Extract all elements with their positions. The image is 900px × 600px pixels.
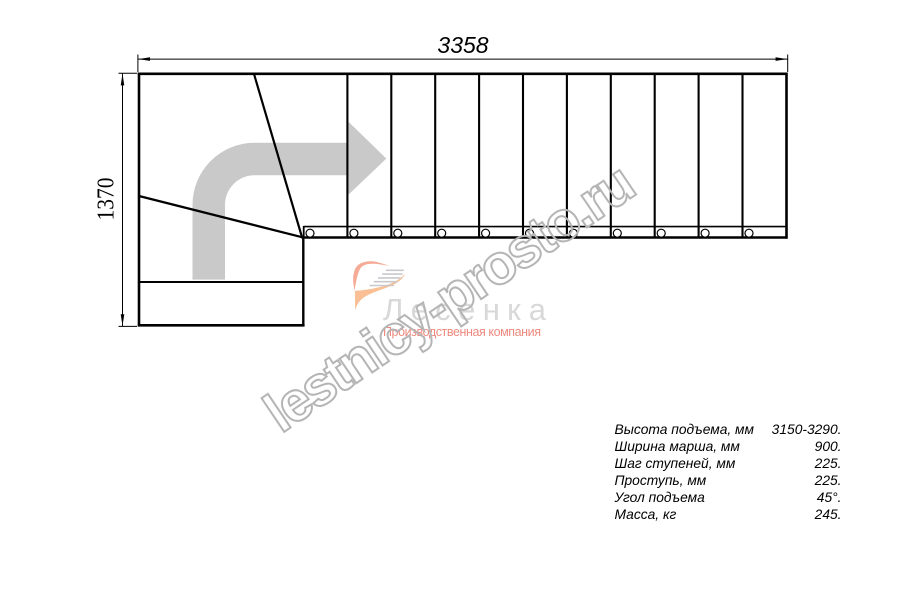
- svg-text:Ширина марша, мм: Ширина марша, мм: [615, 439, 741, 454]
- svg-text:Шаг ступеней, мм: Шаг ступеней, мм: [615, 456, 736, 471]
- svg-text:245.: 245.: [814, 507, 842, 522]
- svg-text:3358: 3358: [437, 32, 488, 58]
- svg-text:Угол подъема: Угол подъема: [614, 490, 706, 505]
- svg-text:225.: 225.: [814, 456, 842, 471]
- svg-text:Масса, кг: Масса, кг: [615, 507, 677, 522]
- svg-text:900.: 900.: [815, 439, 842, 454]
- svg-text:45°.: 45°.: [817, 490, 842, 505]
- svg-text:Проступь, мм: Проступь, мм: [615, 473, 707, 488]
- svg-text:3150-3290.: 3150-3290.: [772, 422, 842, 437]
- svg-text:Высота подъема, мм: Высота подъема, мм: [615, 422, 755, 437]
- svg-text:1370: 1370: [94, 178, 120, 221]
- svg-text:225.: 225.: [814, 473, 842, 488]
